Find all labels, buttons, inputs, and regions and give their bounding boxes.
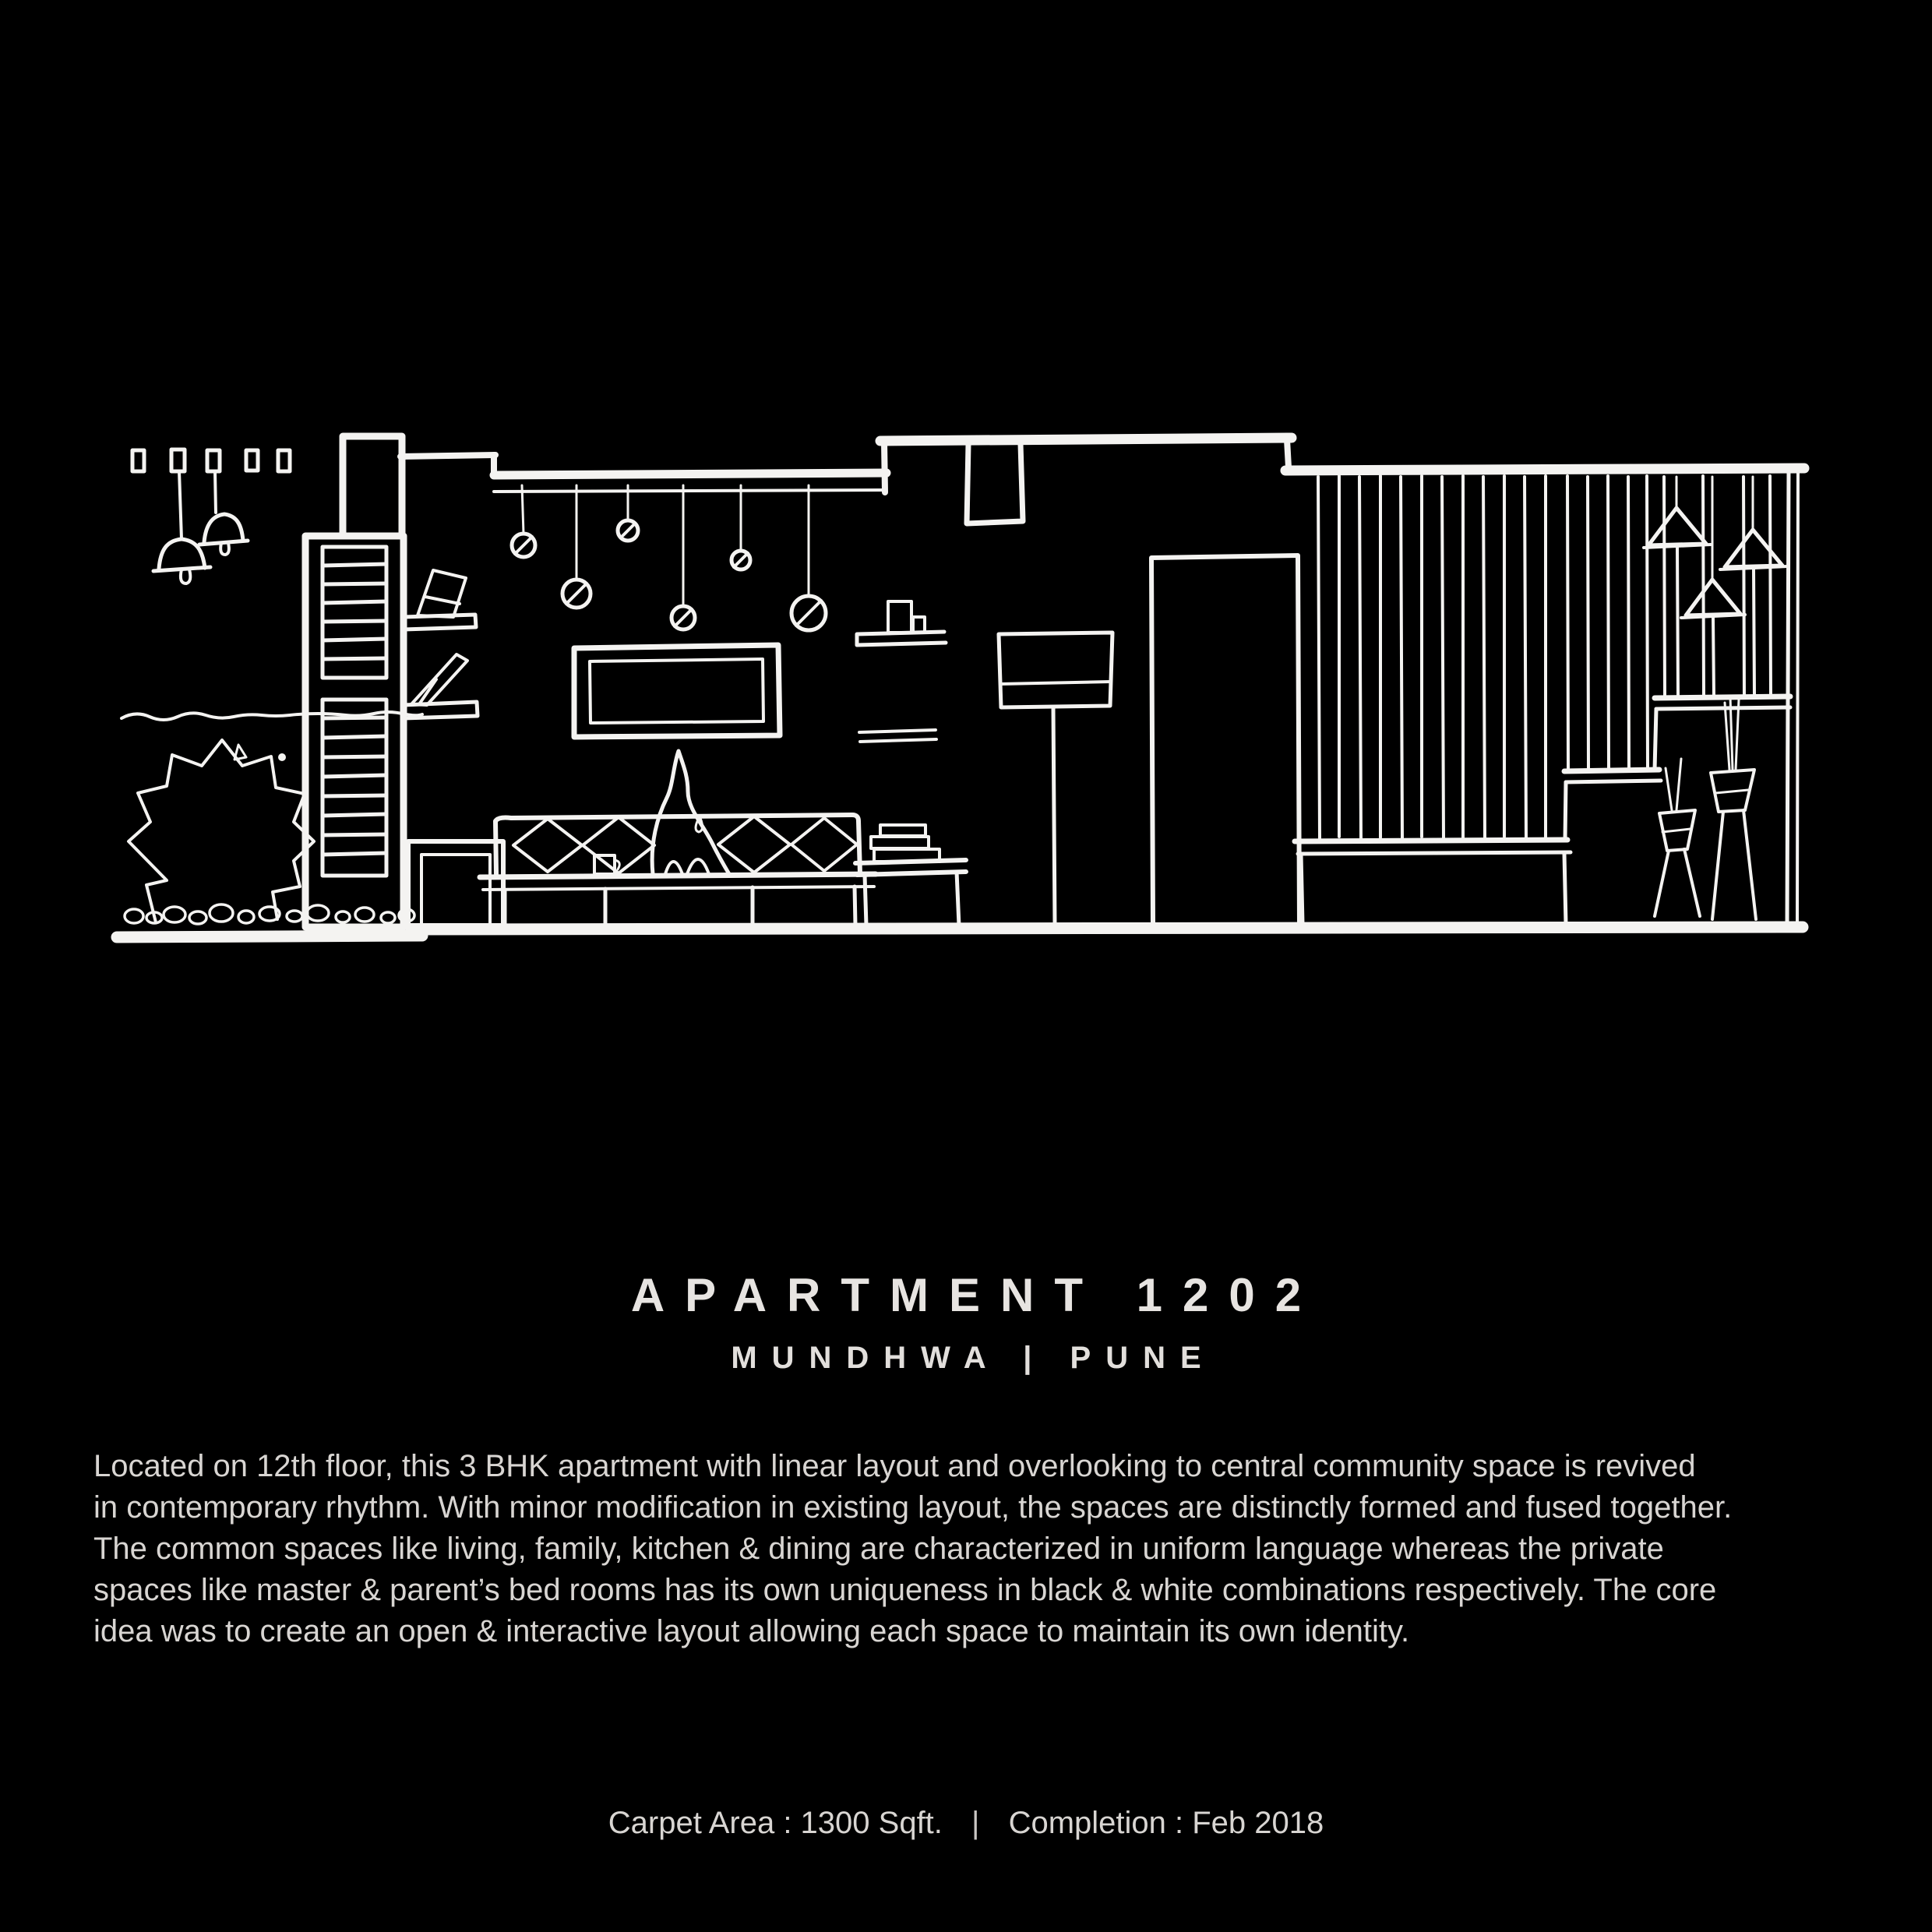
ladder-shelf-column-icon [305,436,404,927]
pebbles-icon [125,904,414,924]
title-block: APARTMENT 1202 MUNDHWA | PUNE [0,1268,1932,1376]
floor-lamp-icon [999,633,1112,925]
description-line: spaces like master & parent’s bed rooms … [93,1570,1854,1611]
small-wall-shelf-icon [857,601,946,742]
description-line: idea was to create an open & interactive… [93,1611,1854,1652]
bulb-pendant-lamps-icon [512,485,826,630]
wall-shelves-with-books-icon [404,570,478,718]
bell-pendant-lamps-icon [153,471,248,583]
track-lights-icon [132,450,290,471]
description-line: Located on 12th floor, this 3 BHK apartm… [93,1446,1854,1487]
page-title: APARTMENT 1202 [0,1268,1932,1322]
description-line: The common spaces like living, family, k… [93,1528,1854,1570]
side-table-with-books-icon [855,825,966,925]
page-subtitle: MUNDHWA | PUNE [0,1341,1932,1376]
completion-label: Completion : Feb 2018 [1009,1806,1324,1840]
right-wall-icon [1787,471,1798,925]
dropped-ceiling-icon [400,455,887,492]
sofa-with-cushions-icon [480,815,876,925]
slatted-partition-icon [1318,476,1771,839]
cat-figure-icon [652,751,729,874]
project-description: Located on 12th floor, this 3 BHK apartm… [93,1446,1854,1652]
elevation-sketch-svg [101,421,1823,966]
project-meta: Carpet Area : 1300 Sqft. | Completion : … [0,1806,1932,1841]
doorway-icon [1151,555,1299,924]
wall-frame-icon [574,645,780,737]
low-cabinet-icon [408,841,503,925]
garden-bush-icon [122,712,422,922]
meta-separator: | [971,1806,979,1840]
carpet-area-label: Carpet Area : 1300 Sqft. [608,1806,943,1840]
elevation-sketch [101,421,1823,966]
planter-vases-icon [1655,696,1756,919]
description-line: in contemporary rhythm. With minor modif… [93,1487,1854,1528]
